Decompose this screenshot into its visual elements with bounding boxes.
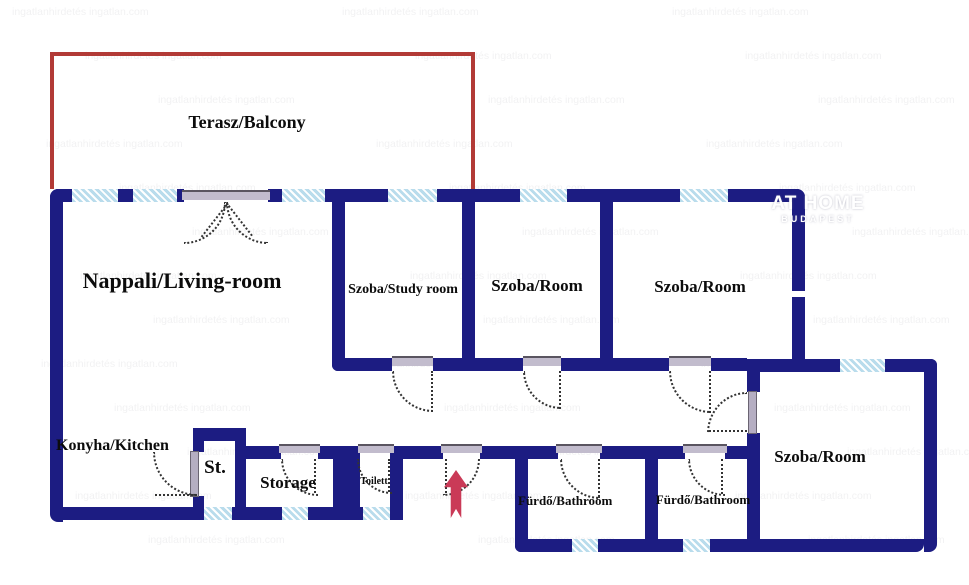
wall bbox=[332, 358, 392, 371]
window bbox=[204, 507, 232, 520]
door-threshold-room2 bbox=[669, 356, 711, 366]
door-leafline-st bbox=[155, 494, 197, 496]
wall bbox=[332, 189, 345, 371]
window bbox=[282, 507, 308, 520]
wall bbox=[600, 189, 613, 371]
watermark-text: ingatlanhirdetés ingatlan.com bbox=[672, 6, 809, 18]
wall bbox=[600, 446, 685, 459]
wall bbox=[528, 446, 558, 459]
room-label-storage: Storage bbox=[260, 473, 316, 493]
window bbox=[133, 189, 177, 202]
door-leafline-study bbox=[431, 371, 433, 412]
watermark-text: ingatlanhirdetés ingatlan.com bbox=[774, 402, 911, 414]
room-label-terasz: Terasz/Balcony bbox=[188, 112, 305, 133]
door-threshold-bathroom1 bbox=[556, 444, 602, 453]
window bbox=[680, 189, 728, 202]
door-arc-bathroom2 bbox=[688, 459, 725, 496]
watermark-text: ingatlanhirdetés ingatlan.com bbox=[153, 314, 290, 326]
wall bbox=[747, 359, 840, 372]
wall bbox=[333, 446, 360, 520]
wall bbox=[235, 428, 246, 507]
wall bbox=[725, 446, 747, 459]
window bbox=[683, 539, 710, 552]
door-leafline-bathroom2 bbox=[721, 459, 723, 494]
agency-logo: AT HOME BUDAPEST bbox=[768, 194, 868, 225]
window bbox=[840, 359, 885, 372]
watermark-text: ingatlanhirdetés ingatlan.com bbox=[488, 94, 625, 106]
watermark-text: ingatlanhirdetés ingatlan.com bbox=[740, 270, 877, 282]
door-leafline-room1 bbox=[559, 371, 561, 409]
wall bbox=[433, 358, 523, 371]
wall bbox=[318, 446, 333, 459]
watermark-text: ingatlanhirdetés ingatlan.com bbox=[852, 226, 969, 238]
door-threshold-bathroom2 bbox=[683, 444, 727, 453]
door-arc-room3 bbox=[707, 392, 747, 433]
door-arc-study bbox=[392, 371, 433, 412]
wall bbox=[193, 496, 204, 507]
window bbox=[520, 189, 567, 202]
door-threshold-balcony bbox=[182, 190, 270, 200]
wall bbox=[232, 507, 282, 520]
door-threshold-study bbox=[392, 356, 433, 366]
wall bbox=[50, 189, 63, 522]
room-label-furdo1: Fürdő/Bathroom bbox=[518, 493, 612, 509]
watermark-text: ingatlanhirdetés ingatlan.com bbox=[342, 6, 479, 18]
window bbox=[363, 507, 390, 520]
wall bbox=[598, 539, 683, 552]
room-label-study: Szoba/Study room bbox=[348, 282, 458, 298]
wall bbox=[193, 428, 204, 452]
door-leafline-toilett bbox=[388, 459, 390, 492]
door-threshold-storage bbox=[279, 444, 320, 453]
window bbox=[282, 189, 325, 202]
watermark-text: ingatlanhirdetés ingatlan.com bbox=[114, 402, 251, 414]
window bbox=[572, 539, 598, 552]
room-label-konyha: Konyha/Kitchen bbox=[56, 437, 169, 455]
watermark-text: ingatlanhirdetés ingatlan.com bbox=[12, 6, 149, 18]
room-label-szoba3: Szoba/Room bbox=[774, 447, 866, 467]
floor-plan: ingatlanhirdetés ingatlan.comingatlanhir… bbox=[0, 0, 969, 585]
wall bbox=[246, 446, 281, 459]
door-leafline-bathroom1 bbox=[598, 459, 600, 497]
door-leafline-room3 bbox=[709, 430, 747, 432]
wall bbox=[50, 507, 204, 520]
watermark-text: ingatlanhirdetés ingatlan.com bbox=[818, 94, 955, 106]
door-threshold-entrance bbox=[441, 444, 482, 453]
window bbox=[388, 189, 437, 202]
door-leaf-room3 bbox=[748, 391, 757, 434]
wall bbox=[747, 359, 760, 392]
wall bbox=[462, 189, 475, 371]
window bbox=[72, 189, 118, 202]
wall bbox=[268, 189, 282, 202]
room-label-nappali: Nappali/Living-room bbox=[83, 268, 282, 294]
wall bbox=[710, 539, 924, 552]
room-label-toilett: Toilett bbox=[360, 476, 387, 487]
room-label-szoba1: Szoba/Room bbox=[491, 276, 583, 296]
wall bbox=[924, 359, 937, 552]
wall bbox=[480, 446, 528, 459]
wall bbox=[711, 358, 747, 371]
wall bbox=[561, 358, 669, 371]
watermark-text: ingatlanhirdetés ingatlan.com bbox=[148, 534, 285, 546]
watermark-text: ingatlanhirdetés ingatlan.com bbox=[706, 138, 843, 150]
wall bbox=[567, 189, 680, 202]
agency-logo-title: AT HOME bbox=[768, 194, 868, 214]
wall bbox=[118, 189, 133, 202]
door-threshold-room1 bbox=[523, 356, 561, 366]
wall bbox=[437, 189, 520, 202]
door-leafline-room2 bbox=[709, 371, 711, 413]
door-threshold-toilett bbox=[358, 444, 394, 453]
room-label-szoba2: Szoba/Room bbox=[654, 277, 746, 297]
watermark-text: ingatlanhirdetés ingatlan.com bbox=[813, 314, 950, 326]
room-label-furdo2: Fürdő/Bathroom bbox=[656, 492, 750, 508]
agency-logo-line bbox=[790, 291, 807, 297]
watermark-text: ingatlanhirdetés ingatlan.com bbox=[522, 226, 659, 238]
door-arc-room2 bbox=[669, 371, 711, 413]
watermark-text: ingatlanhirdetés ingatlan.com bbox=[745, 50, 882, 62]
door-leafline-entrance bbox=[445, 459, 447, 493]
room-label-st: St. bbox=[204, 457, 226, 479]
agency-logo-subtitle: BUDAPEST bbox=[768, 214, 868, 225]
